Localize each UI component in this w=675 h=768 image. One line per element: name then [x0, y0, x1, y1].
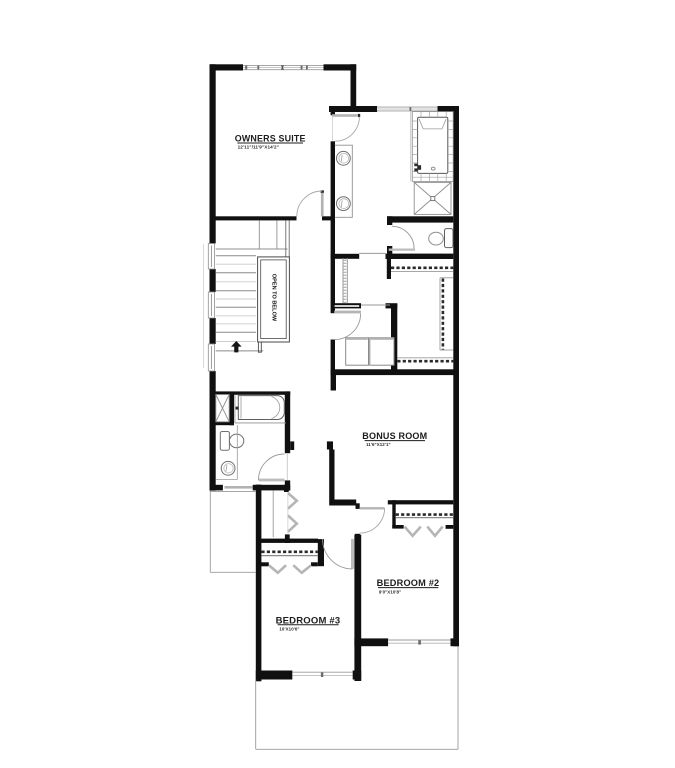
- svg-text:11'6"X12'1": 11'6"X12'1": [366, 442, 391, 447]
- svg-text:BONUS ROOM: BONUS ROOM: [362, 431, 427, 441]
- svg-text:10'X10'6": 10'X10'6": [279, 627, 299, 632]
- svg-text:BEDROOM #2: BEDROOM #2: [377, 578, 440, 588]
- svg-text:9'0"X10'8": 9'0"X10'8": [379, 590, 401, 595]
- svg-text:12'11"/11'9"X14'2": 12'11"/11'9"X14'2": [238, 145, 279, 150]
- svg-text:OPEN TO BELOW: OPEN TO BELOW: [271, 274, 277, 322]
- svg-text:OWNERS SUITE: OWNERS SUITE: [235, 133, 306, 143]
